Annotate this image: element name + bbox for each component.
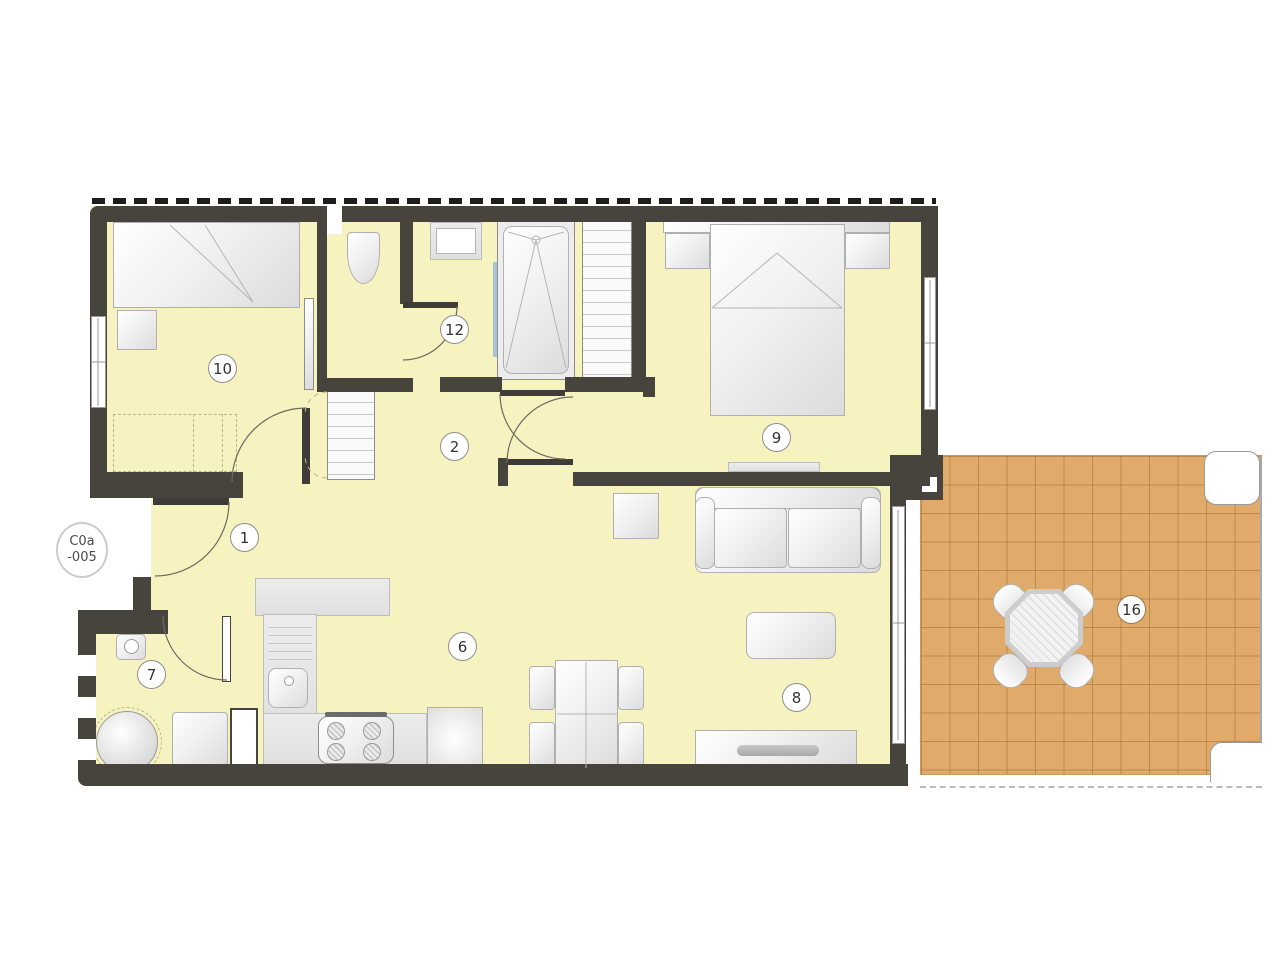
room-label-entrance-text: 1	[240, 529, 250, 547]
coffee-table	[746, 612, 836, 659]
wall-top-vent-gap	[327, 206, 342, 234]
double-bed	[710, 224, 845, 416]
door-leaf-toilet	[403, 302, 458, 308]
unit-badge: C0a -005	[56, 522, 108, 578]
burner-1	[327, 722, 345, 740]
window-bedroom9	[924, 277, 936, 410]
washing-machine	[172, 712, 228, 766]
room-label-bathroom-text: 12	[445, 321, 464, 339]
door-leaf-kitchen	[230, 708, 258, 766]
dining-chair-1	[529, 666, 555, 710]
single-bed	[113, 222, 300, 308]
room-label-bedroom-main-text: 9	[772, 429, 782, 447]
wall-under-bedroom10	[90, 472, 243, 498]
terrace-corner-pillar-top	[1204, 451, 1260, 505]
sofa-armrest-right	[861, 497, 881, 569]
sofa-cushion-left	[714, 508, 787, 568]
room-label-entrance: 1	[230, 523, 259, 552]
kitchen-counter-top	[255, 578, 390, 616]
wardrobe-hall	[582, 218, 632, 380]
closet-outline-dashed	[113, 414, 237, 472]
room-label-utility-text: 7	[147, 666, 157, 684]
room-label-terrace-text: 16	[1122, 601, 1141, 619]
floor-plan: 1 2 6 7 8 9 10 12 16 C0a -005	[0, 0, 1280, 960]
room-label-hallway: 2	[440, 432, 469, 461]
terrace-boundary-dashed-line	[920, 786, 1262, 788]
utility-sink-drain	[124, 639, 139, 654]
site-boundary-dashes	[92, 198, 936, 204]
sink-drain	[284, 676, 294, 686]
wall-utility-striped	[78, 634, 96, 764]
fridge	[427, 707, 483, 765]
sofa-cushion-right	[788, 508, 861, 568]
room-label-utility: 7	[137, 660, 166, 689]
door-leaf-bathroom	[500, 390, 565, 396]
wall-utility-top	[78, 610, 168, 634]
burner-2	[363, 722, 381, 740]
room-label-hallway-text: 2	[450, 438, 460, 456]
stove-control-bar	[325, 712, 387, 717]
wall-hall-bedroom9	[632, 206, 646, 391]
tall-cabinet	[304, 298, 314, 390]
burner-3	[327, 743, 345, 761]
wall-toilet-bathroom	[400, 206, 413, 304]
nightstand-bedroom10	[117, 310, 157, 350]
kitchen-drainboard	[268, 620, 312, 664]
room-label-living: 8	[782, 683, 811, 712]
wall-jamb-bedroom9	[643, 377, 655, 397]
dining-chair-3	[618, 666, 644, 710]
wall-bathroom-bottom-left	[440, 377, 502, 392]
bedroom9-shelf	[728, 462, 820, 472]
shower-glass-door	[493, 262, 497, 357]
unit-badge-line2: -005	[67, 550, 97, 566]
side-table	[613, 493, 659, 539]
nightstand-left	[665, 233, 710, 269]
window-bedroom10	[91, 316, 106, 408]
terrace-corner-pillar-bottom	[1210, 742, 1262, 782]
sliding-door-terrace	[892, 506, 905, 744]
door-leaf-bedroom10	[302, 408, 310, 484]
room-label-living-text: 8	[792, 689, 802, 707]
room-label-bedroom-second-text: 10	[213, 360, 232, 378]
dining-chair-2	[529, 722, 555, 766]
unit-badge-line1: C0a	[69, 534, 94, 550]
wardrobe-bedroom10	[327, 390, 375, 480]
burner-4	[363, 743, 381, 761]
shower-tray	[503, 226, 569, 374]
room-label-bathroom: 12	[440, 315, 469, 344]
wall-living-top	[573, 472, 930, 486]
bathroom-sink-basin	[436, 228, 476, 254]
wall-toilet-bottom	[317, 378, 413, 392]
room-label-bedroom-second: 10	[208, 354, 237, 383]
room-label-kitchen-dining: 6	[448, 632, 477, 661]
room-label-bedroom-main: 9	[762, 423, 791, 452]
sofa-armrest-left	[695, 497, 715, 569]
wall-top	[90, 206, 938, 222]
wall-bedroom10-toilet	[317, 206, 327, 392]
kitchen-sink	[268, 668, 308, 708]
closet-divider-1	[193, 414, 195, 472]
nightstand-right	[845, 233, 890, 269]
closet-divider-2	[222, 414, 224, 472]
dining-chair-4	[618, 722, 644, 766]
sofa-backrest	[695, 487, 881, 509]
room-label-terrace: 16	[1117, 595, 1146, 624]
door-leaf-utility	[222, 616, 231, 682]
door-leaf-entrance	[153, 498, 229, 505]
room-label-kitchen-dining-text: 6	[458, 638, 468, 656]
dining-table	[555, 660, 618, 768]
wall-living-top-stub	[498, 472, 508, 486]
sideboard-handle	[737, 745, 819, 756]
wall-bottom	[78, 764, 908, 786]
door-leaf-living	[507, 459, 573, 465]
